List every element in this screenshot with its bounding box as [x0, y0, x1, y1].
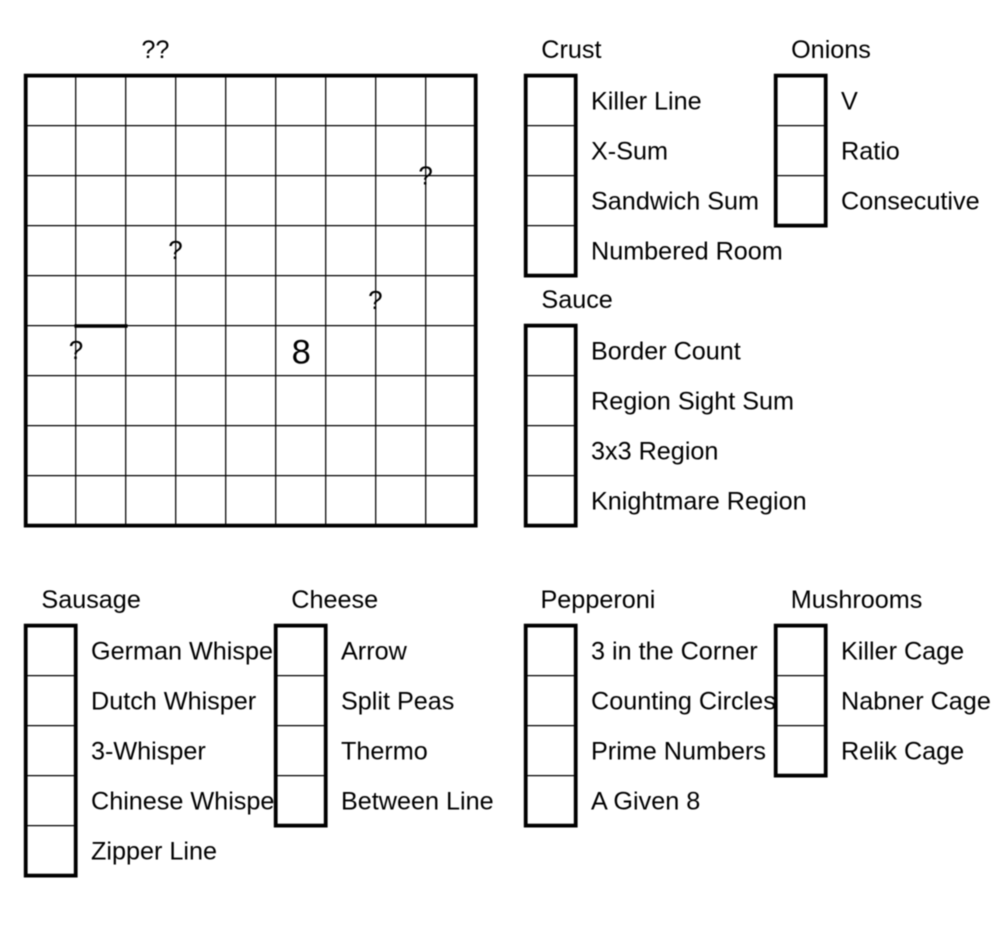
svg-text:Thermo: Thermo [341, 737, 428, 765]
svg-text:Killer Line: Killer Line [591, 87, 702, 115]
svg-text:Mushrooms: Mushrooms [791, 586, 923, 614]
svg-text:Consecutive: Consecutive [841, 187, 980, 215]
svg-text:3-Whisper: 3-Whisper [91, 737, 206, 765]
svg-text:?: ? [418, 160, 432, 190]
svg-text:Cheese: Cheese [291, 586, 378, 614]
svg-text:German Whisper: German Whisper [91, 637, 281, 665]
svg-text:X-Sum: X-Sum [591, 137, 668, 165]
svg-text:Relik Cage: Relik Cage [841, 737, 964, 765]
svg-text:Crust: Crust [541, 36, 601, 64]
svg-text:Ratio: Ratio [841, 137, 900, 165]
svg-text:Between Line: Between Line [341, 787, 494, 815]
svg-text:Killer Cage: Killer Cage [841, 637, 964, 665]
svg-text:3x3 Region: 3x3 Region [591, 437, 718, 465]
svg-text:?: ? [368, 285, 382, 315]
svg-text:Sandwich Sum: Sandwich Sum [591, 187, 759, 215]
svg-text:Zipper Line: Zipper Line [91, 837, 217, 865]
svg-text:?: ? [168, 235, 182, 265]
svg-text:Nabner Cage: Nabner Cage [841, 687, 991, 715]
svg-text:Region Sight Sum: Region Sight Sum [591, 387, 794, 415]
svg-text:?: ? [69, 335, 83, 365]
svg-text:Dutch Whisper: Dutch Whisper [91, 687, 256, 715]
svg-text:V: V [841, 87, 858, 115]
svg-text:3 in the Corner: 3 in the Corner [591, 637, 758, 665]
svg-text:Pepperoni: Pepperoni [541, 586, 656, 614]
svg-text:Border Count: Border Count [591, 337, 741, 365]
svg-text:Counting Circles: Counting Circles [591, 687, 776, 715]
svg-text:??: ?? [141, 36, 169, 64]
svg-text:Sauce: Sauce [541, 286, 612, 314]
svg-text:Prime Numbers: Prime Numbers [591, 737, 766, 765]
svg-text:Split Peas: Split Peas [341, 687, 454, 715]
svg-text:Sausage: Sausage [41, 586, 140, 614]
svg-text:Knightmare Region: Knightmare Region [591, 487, 807, 515]
svg-text:A Given 8: A Given 8 [591, 787, 700, 815]
svg-text:Onions: Onions [791, 36, 871, 64]
svg-text:Chinese Whisper: Chinese Whisper [91, 787, 283, 815]
svg-text:8: 8 [292, 333, 311, 371]
svg-text:Arrow: Arrow [341, 637, 408, 665]
svg-text:Numbered Room: Numbered Room [591, 237, 783, 265]
